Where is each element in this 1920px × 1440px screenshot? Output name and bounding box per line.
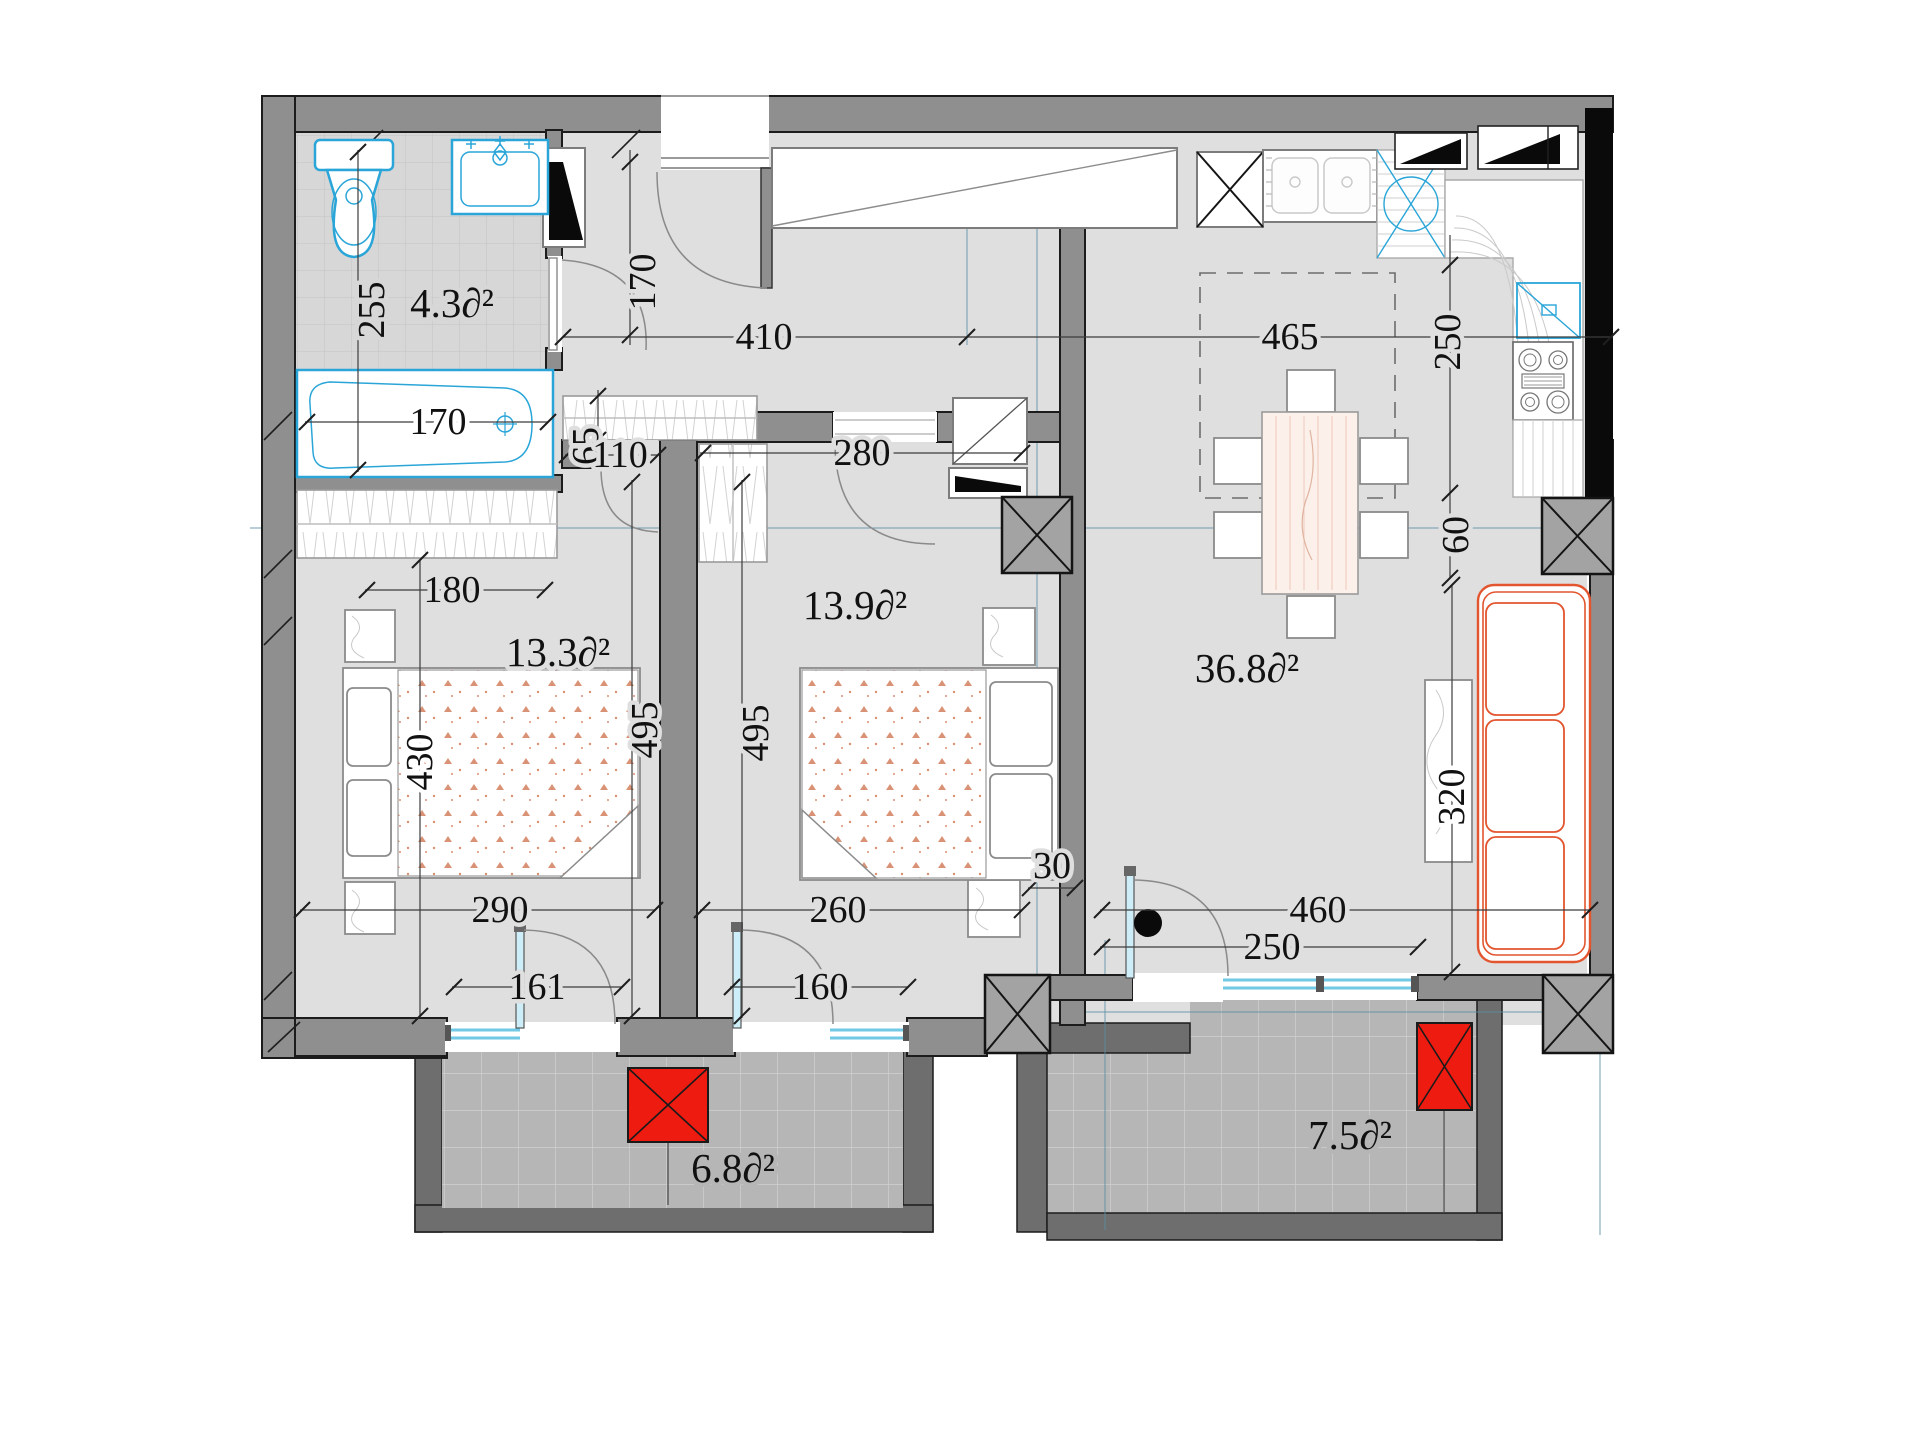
dim-balcony-door1: 161 [509,966,566,1008]
dim-bath-width: 255 [351,282,393,339]
dim-wardrobe-width: 180 [424,569,481,611]
dim-column-gap: 60 [1435,516,1477,554]
kitchen-base-cabinet [1513,420,1583,497]
dim-closet-width: 110 [592,434,648,476]
nightstand [968,880,1020,937]
area-balcony-right: 7.5∂² [1308,1112,1392,1158]
nightstand [345,610,395,662]
bed [800,668,1058,880]
dining-chair [1287,596,1335,638]
kitchen-vent-shaft [1197,152,1263,227]
bedroom1-wardrobe [297,490,557,558]
dim-bed-wall: 430 [399,734,441,791]
bathroom-sink [452,136,548,214]
door-leaf [1126,873,1134,978]
dim-bedroom1-width: 290 [472,889,529,931]
area-balcony-left: 6.8∂² [691,1145,775,1191]
top-wall [262,96,1613,132]
entry-wardrobe [772,148,1177,228]
area-living: 36.8∂² [1195,645,1299,691]
column [985,975,1050,1053]
dim-hall-width: 410 [736,316,793,358]
pillow [347,688,391,766]
kitchen-sink-counter [1263,150,1378,222]
pillow [347,780,391,856]
sofa [1478,585,1590,962]
column [1002,497,1072,573]
bed [343,668,640,878]
dim-bathtub-length: 170 [410,401,467,443]
door-pivot-dot [1134,909,1162,937]
dim-sofa-wall: 320 [1431,769,1473,826]
dim-kitchen-width: 465 [1262,316,1319,358]
dim-living-width: 460 [1290,889,1347,931]
dim-bedroom2-width: 280 [834,432,891,474]
dim-kitchen-depth: 250 [1427,314,1469,371]
area-bathroom: 4.3∂² [410,280,494,326]
entrance-door-leaf [761,168,772,288]
living-partition-wall [1060,228,1085,1025]
duct-shaft [543,148,585,247]
nightstand [983,608,1035,665]
area-bedroom2: 13.9∂² [803,582,907,628]
dim-bedroom2-width-b: 260 [810,889,867,931]
dining-chair [1214,438,1262,484]
bedroom2-vent-shaft [949,398,1027,498]
floor-plan-drawing: 410 465 255 170 170 65 110 280 180 495 4… [0,0,1920,1440]
dim-hall-depth: 170 [622,254,664,311]
bedroom2-wardrobe [699,444,767,562]
dim-bedroom2-length: 495 [735,705,777,762]
dining-chair [1287,370,1335,412]
door-leaf [733,928,741,1028]
dining-chair [1214,512,1262,558]
pillow [990,682,1052,766]
right-shear-wall [1585,108,1613,498]
stove [1513,342,1573,420]
dining-chair [1360,512,1408,558]
dining-chair [1360,438,1408,484]
column [1543,975,1613,1053]
floor-plan-page: 410 465 255 170 170 65 110 280 180 495 4… [0,0,1920,1440]
area-bedroom1: 13.3∂² [506,629,610,675]
kitchen-windows [1395,126,1578,169]
left-wall [262,96,295,1058]
dim-living-door: 250 [1244,926,1301,968]
dim-bedroom1-length: 495 [624,702,666,759]
column [1542,498,1613,574]
dim-wall-thickness: 30 [1033,845,1071,887]
dim-balcony-door2: 160 [792,966,849,1008]
